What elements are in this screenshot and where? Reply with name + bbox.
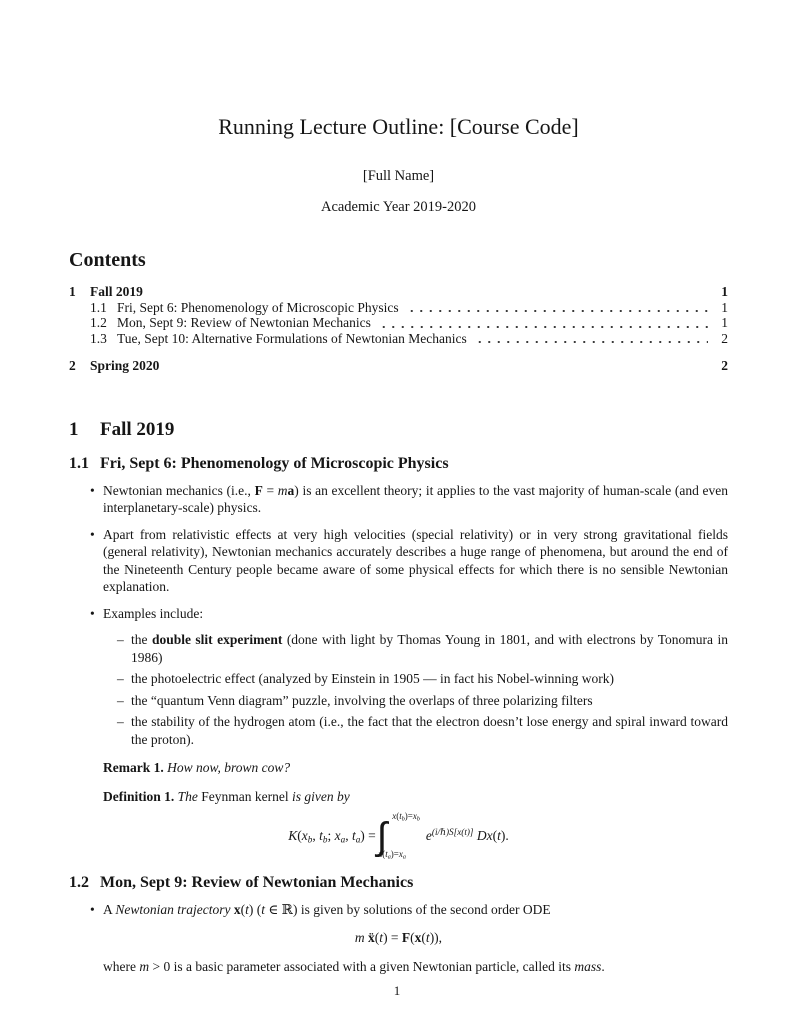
text-part: the “quantum Venn diagram” puzzle, invol… <box>131 693 593 708</box>
formula-rhs: e(i/ℏ)S[x(t)] Dx(t). <box>426 827 509 844</box>
subsection-heading-newtonian-review: 1.2 Mon, Sept 9: Review of Newtonian Mec… <box>69 873 728 893</box>
text-part: Remark 1. <box>103 760 164 775</box>
text-part: Definition 1. <box>103 789 174 804</box>
subsection-number: 1.2 <box>69 873 100 893</box>
text-part: m <box>355 930 365 945</box>
text-part: x <box>234 902 241 917</box>
text-part: ) = <box>383 930 402 945</box>
academic-year-line: Academic Year 2019-2020 <box>69 198 728 216</box>
text-part: ∈ ℝ) is given by solutions of the second… <box>265 902 551 917</box>
toc-entry-page: 1 <box>714 300 728 316</box>
text-part: ) ( <box>249 902 261 917</box>
page-title: Running Lecture Outline: [Course Code] <box>69 0 728 142</box>
example-double-slit: the double slit experiment (done with li… <box>69 631 728 666</box>
bullet-relativistic-effects: Apart from relativistic effects at very … <box>69 526 728 596</box>
toc-entry-label: Tue, Sept 10: Alternative Formulations o… <box>117 331 467 347</box>
text-part: mass <box>574 959 601 974</box>
text-part: Examples include: <box>103 606 203 621</box>
examples-sublist: the double slit experiment (done with li… <box>69 631 728 748</box>
integral-lower-limit: x(ta)=xa <box>378 849 420 861</box>
bullet-examples-include: Examples include: <box>69 605 728 623</box>
text-part: . <box>601 959 604 974</box>
example-photoelectric: the photoelectric effect (analyzed by Ei… <box>69 670 728 688</box>
text-part: )= <box>405 811 413 821</box>
text-part: K <box>288 828 297 843</box>
text-part: m <box>139 959 149 974</box>
bullet-newtonian-trajectory: A Newtonian trajectory x(t) (t ∈ ℝ) is g… <box>69 901 728 919</box>
toc-entry-number: 1.1 <box>90 300 117 316</box>
subsection-heading-phenomenology: 1.1 Fri, Sept 6: Phenomenology of Micros… <box>69 454 728 474</box>
toc-dot-leader <box>379 315 708 331</box>
text-part: Feynman kernel <box>201 789 288 804</box>
text-part: (i/ℏ)S[x(t)] <box>432 827 474 837</box>
toc-entry-phenomenology: 1.1 Fri, Sept 6: Phenomenology of Micros… <box>69 300 728 316</box>
text-part: = <box>263 483 278 498</box>
toc-entry-label: Fall 2019 <box>90 284 143 300</box>
toc-entry-number: 1.2 <box>90 315 117 331</box>
text-part: where <box>103 959 139 974</box>
feynman-kernel-formula: K(xb, tb; xa, ta) = ∫ x(tb)=xb x(ta)=xa … <box>69 812 728 860</box>
definition-1: Definition 1. The Feynman kernel is give… <box>103 788 728 806</box>
text-part: Newtonian trajectory <box>115 902 230 917</box>
formula-lhs: K(xb, tb; xa, ta) = <box>288 828 376 844</box>
toc-entry-page: 2 <box>714 331 728 347</box>
text-part: )= <box>391 849 399 859</box>
text-part: F <box>402 930 410 945</box>
text-part: How now, brown cow? <box>164 760 290 775</box>
document-page: Running Lecture Outline: [Course Code] [… <box>0 0 794 1028</box>
page-number: 1 <box>0 983 794 999</box>
text-part: ). <box>501 829 509 844</box>
integral-limits: x(tb)=xb x(ta)=xa <box>387 812 420 860</box>
text-part: the <box>131 632 152 647</box>
mass-parameter-note: where m > 0 is a basic parameter associa… <box>103 958 728 976</box>
toc-entry-fall-2019: 1 Fall 2019 1 <box>69 284 728 300</box>
section-title: Fall 2019 <box>100 418 174 441</box>
example-quantum-venn: the “quantum Venn diagram” puzzle, invol… <box>69 692 728 710</box>
subsection-title: Fri, Sept 6: Phenomenology of Microscopi… <box>100 454 449 474</box>
toc-entry-page: 1 <box>714 284 728 300</box>
toc-entry-label: Mon, Sept 9: Review of Newtonian Mechani… <box>117 315 371 331</box>
toc-entry-newtonian-review: 1.2 Mon, Sept 9: Review of Newtonian Mec… <box>69 315 728 331</box>
toc-entry-label: Spring 2020 <box>90 358 159 374</box>
text-part: double slit experiment <box>152 632 282 647</box>
toc-entry-number: 1 <box>69 284 90 300</box>
text-part: m <box>278 483 288 498</box>
toc-dot-leader <box>407 300 708 316</box>
integral-upper-limit: x(tb)=xb <box>392 811 420 823</box>
newton-ode-formula: m ẍ(t) = F(x(t)), <box>69 930 728 946</box>
section-number: 1 <box>69 418 100 441</box>
text-part: The <box>174 789 201 804</box>
toc-entry-alternative-formulations: 1.3 Tue, Sept 10: Alternative Formulatio… <box>69 331 728 347</box>
text-part: is given by <box>289 789 350 804</box>
table-of-contents: 1 Fall 2019 1 1.1 Fri, Sept 6: Phenomeno… <box>69 284 728 374</box>
bullet-list: A Newtonian trajectory x(t) (t ∈ ℝ) is g… <box>69 901 728 919</box>
bullet-newtonian-mechanics: Newtonian mechanics (i.e., F = ma) is an… <box>69 482 728 517</box>
bullet-list: Newtonian mechanics (i.e., F = ma) is an… <box>69 482 728 623</box>
text-part: )), <box>430 930 442 945</box>
text-part: b <box>417 817 420 823</box>
section-heading-fall-2019: 1 Fall 2019 <box>69 418 728 441</box>
toc-entry-page: 1 <box>714 315 728 331</box>
toc-entry-number: 1.3 <box>90 331 117 347</box>
subsection-title: Mon, Sept 9: Review of Newtonian Mechani… <box>100 873 413 893</box>
example-hydrogen-atom: the stability of the hydrogen atom (i.e.… <box>69 713 728 748</box>
toc-entry-page: 2 <box>714 358 728 374</box>
text-part: , <box>345 828 352 843</box>
text-part: Newtonian mechanics (i.e., <box>103 483 255 498</box>
toc-dot-leader <box>475 331 708 347</box>
text-part: a <box>403 855 406 861</box>
text-part: A <box>103 902 115 917</box>
text-part: ) = <box>360 828 375 843</box>
subsection-number: 1.1 <box>69 454 100 474</box>
integral-expression: ∫ x(tb)=xb x(ta)=xa <box>377 812 420 860</box>
text-part: F <box>255 483 263 498</box>
text-part: ; <box>327 828 334 843</box>
text-part: the stability of the hydrogen atom (i.e.… <box>131 714 728 747</box>
text-part: > 0 is a basic parameter associated with… <box>149 959 574 974</box>
contents-heading: Contents <box>69 248 728 272</box>
text-part: D <box>477 829 487 844</box>
author-name: [Full Name] <box>69 167 728 185</box>
toc-entry-number: 2 <box>69 358 90 374</box>
text-part: ẍ <box>368 930 375 945</box>
remark-1: Remark 1. How now, brown cow? <box>103 759 728 777</box>
toc-entry-spring-2020: 2 Spring 2020 2 <box>69 358 728 374</box>
toc-entry-label: Fri, Sept 6: Phenomenology of Microscopi… <box>117 300 399 316</box>
text-part: the photoelectric effect (analyzed by Ei… <box>131 671 614 686</box>
text-part: Apart from relativistic effects at very … <box>103 527 728 595</box>
